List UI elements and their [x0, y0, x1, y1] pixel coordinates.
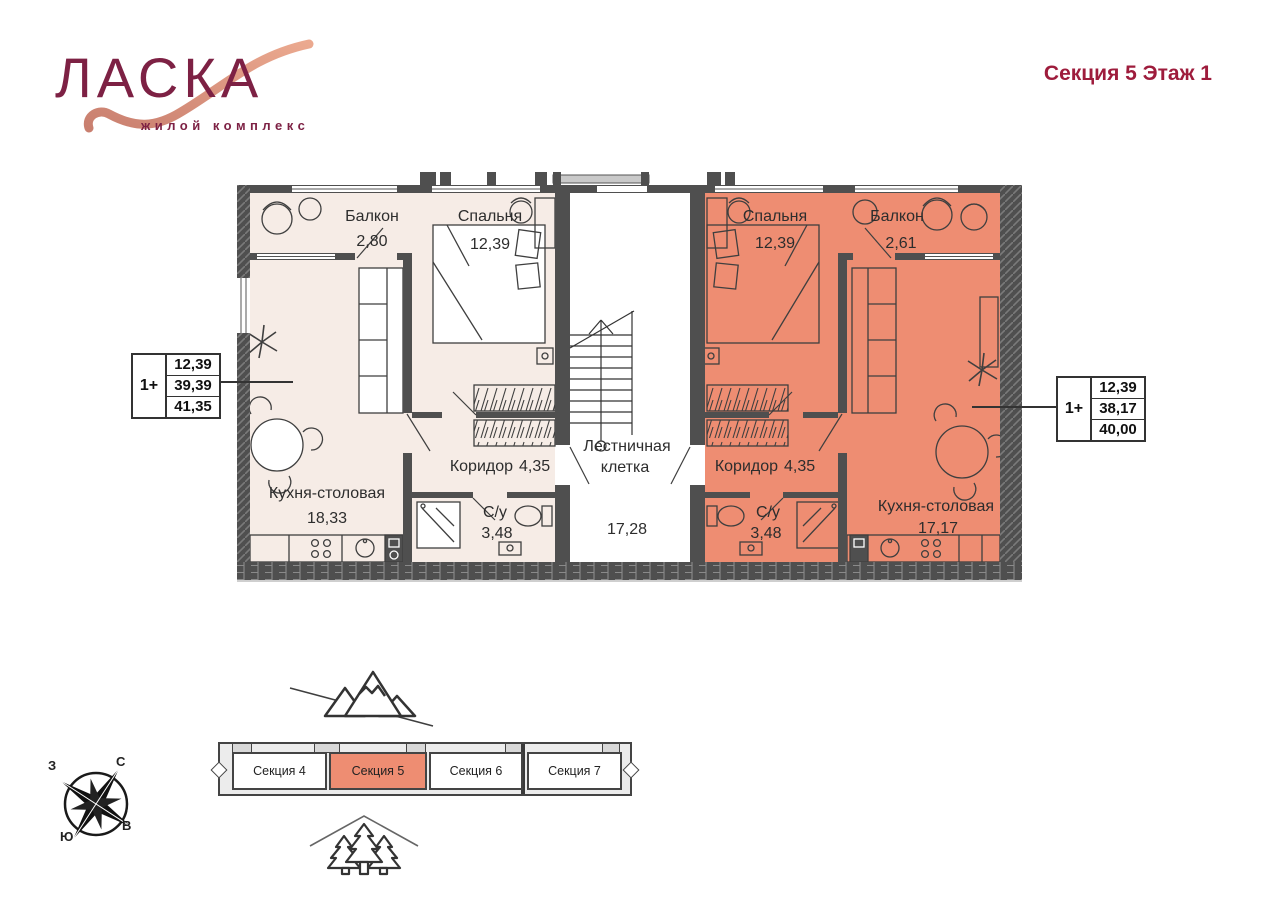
room-area: 12,39 — [470, 236, 510, 253]
section-5-cell[interactable]: Секция 5 — [329, 752, 427, 790]
stat-value: 39,39 — [167, 376, 219, 397]
section-7-cell[interactable]: Секция 7 — [527, 752, 622, 790]
section-label: Секция 4 — [253, 764, 306, 778]
section-6-cell[interactable]: Секция 6 — [429, 752, 523, 790]
stat-value: 40,00 — [1092, 420, 1144, 440]
room-area: 3,48 — [750, 525, 781, 542]
left-apartment-info-box: 1+ 12,39 39,39 41,35 — [131, 353, 221, 419]
right-apartment-info-box: 1+ 12,39 38,17 40,00 — [1056, 376, 1146, 442]
logo-subtitle: жилой комплекс — [141, 118, 309, 133]
room-name: Коридор4,35 — [450, 458, 550, 475]
stat-value: 38,17 — [1092, 399, 1144, 420]
room-name: Балкон — [870, 208, 924, 225]
room-name: Балкон — [345, 208, 399, 225]
logo-title: ЛАСКА — [55, 50, 263, 106]
stat-value: 12,39 — [167, 355, 219, 376]
room-area: 3,48 — [481, 525, 512, 542]
compass-west-label: З — [48, 758, 56, 773]
building-sections-strip: Секция 4 Секция 5 Секция 6 Секция 7 — [218, 742, 632, 796]
compass-north-label: С — [116, 754, 126, 769]
apartment-type: 1+ — [1058, 378, 1092, 440]
floor-plan: Балкон 2,80 Спальня 12,39 Кухня-столовая… — [237, 170, 1022, 582]
compass-south-label: Ю — [60, 829, 73, 844]
room-name: Коридор4,35 — [715, 458, 815, 475]
page-title: Секция 5 Этаж 1 — [950, 62, 1212, 86]
stat-value: 12,39 — [1092, 378, 1144, 399]
section-label: Секция 6 — [450, 764, 503, 778]
section-label: Секция 7 — [548, 764, 601, 778]
trees-icon — [302, 806, 427, 881]
room-name: Кухня-столовая — [269, 485, 385, 502]
section-label: Секция 5 — [352, 764, 405, 778]
apartment-type: 1+ — [133, 355, 167, 417]
stairwell-label: Лестничная — [583, 438, 670, 455]
room-name: Кухня-столовая — [878, 498, 994, 515]
room-name: С/у — [483, 504, 507, 521]
compass-east-label: В — [122, 818, 131, 833]
stat-value: 41,35 — [167, 397, 219, 417]
room-name: Спальня — [743, 208, 807, 225]
room-name: Спальня — [458, 208, 522, 225]
room-area: 2,80 — [356, 233, 387, 250]
room-area: 12,39 — [755, 235, 795, 252]
room-area: 2,61 — [885, 235, 916, 252]
room-name: С/у — [756, 504, 780, 521]
room-area: 18,33 — [307, 510, 347, 527]
stairwell-area: 17,28 — [607, 521, 647, 538]
section-4-cell[interactable]: Секция 4 — [232, 752, 327, 790]
left-info-connector-line — [219, 381, 293, 383]
logo: ЛАСКА жилой комплекс — [55, 36, 325, 140]
stairwell-area — [570, 193, 690, 562]
right-info-connector-line — [972, 406, 1056, 408]
room-area: 17,17 — [918, 520, 958, 537]
mountains-icon — [287, 652, 437, 734]
compass-icon: З С Ю В — [46, 746, 146, 854]
stairwell-label: клетка — [601, 459, 650, 476]
